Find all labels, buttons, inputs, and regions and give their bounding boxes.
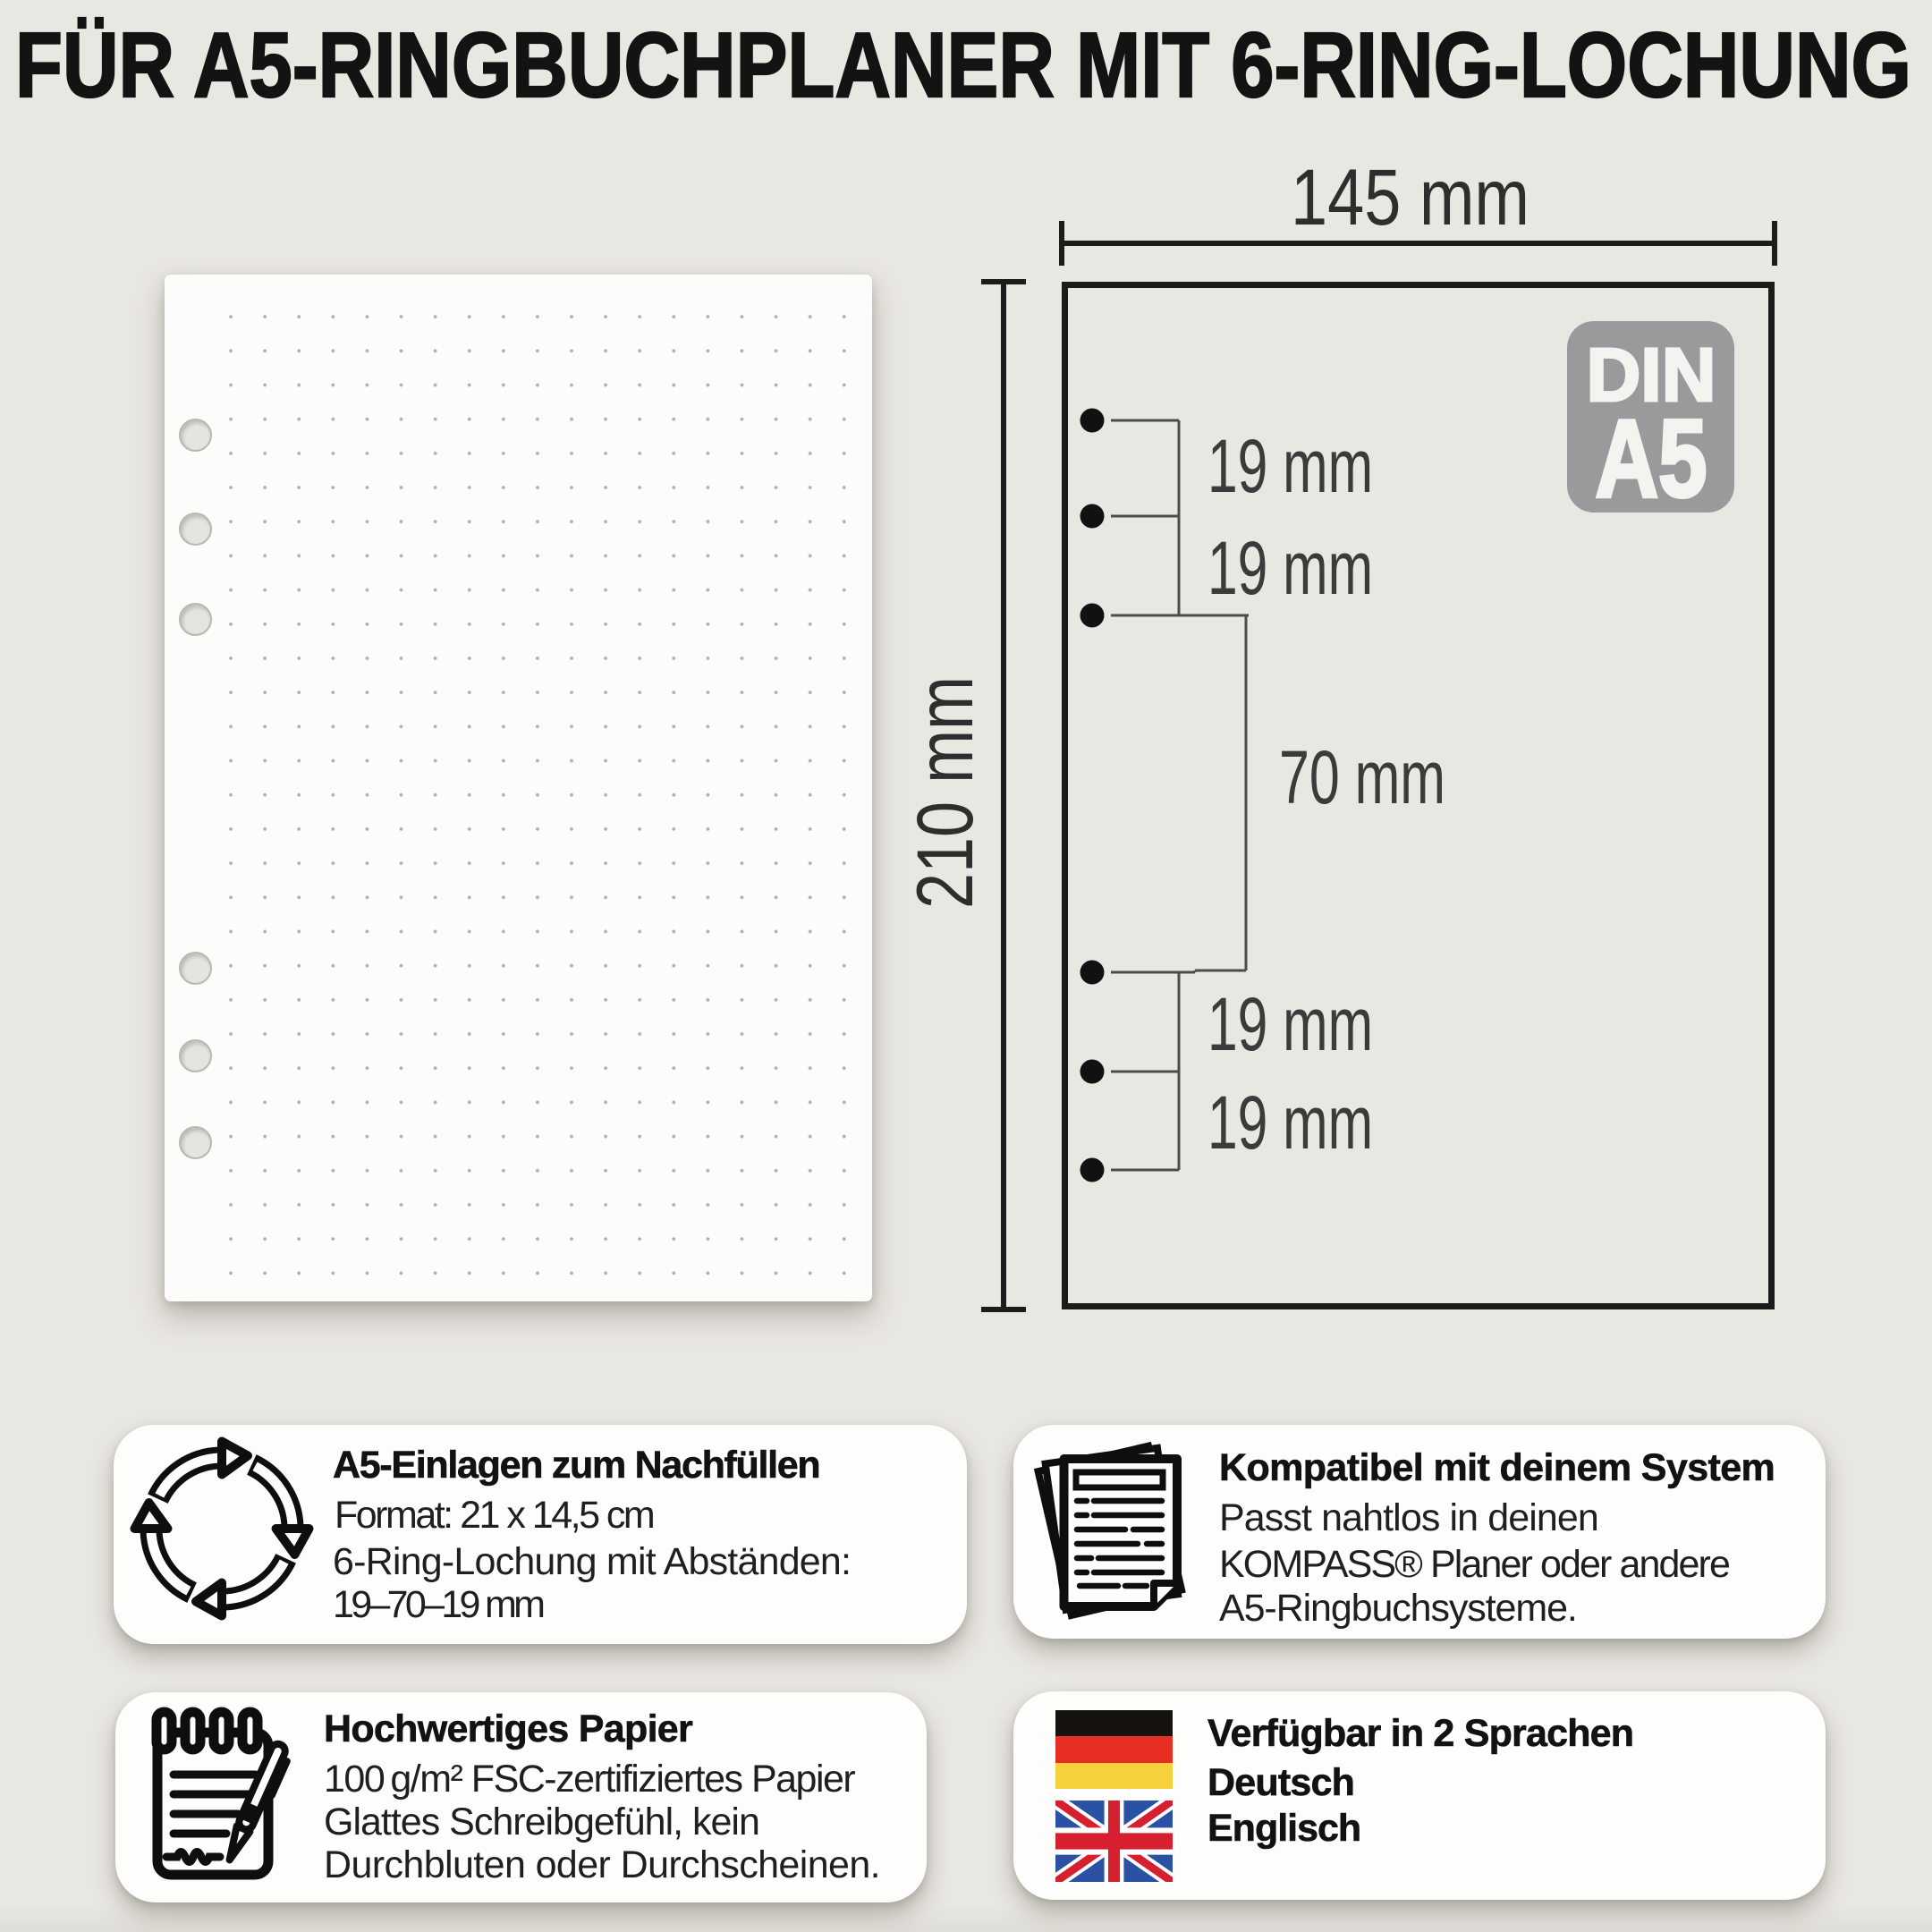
svg-text:19 mm: 19 mm — [1207, 526, 1373, 610]
svg-text:145 mm: 145 mm — [1291, 152, 1529, 241]
svg-text:19 mm: 19 mm — [1207, 424, 1373, 508]
svg-text:A5: A5 — [1596, 398, 1707, 521]
svg-text:19 mm: 19 mm — [1207, 982, 1373, 1066]
svg-text:70 mm: 70 mm — [1279, 735, 1445, 819]
svg-text:19 mm: 19 mm — [1207, 1080, 1373, 1165]
svg-text:210 mm: 210 mm — [900, 676, 989, 909]
